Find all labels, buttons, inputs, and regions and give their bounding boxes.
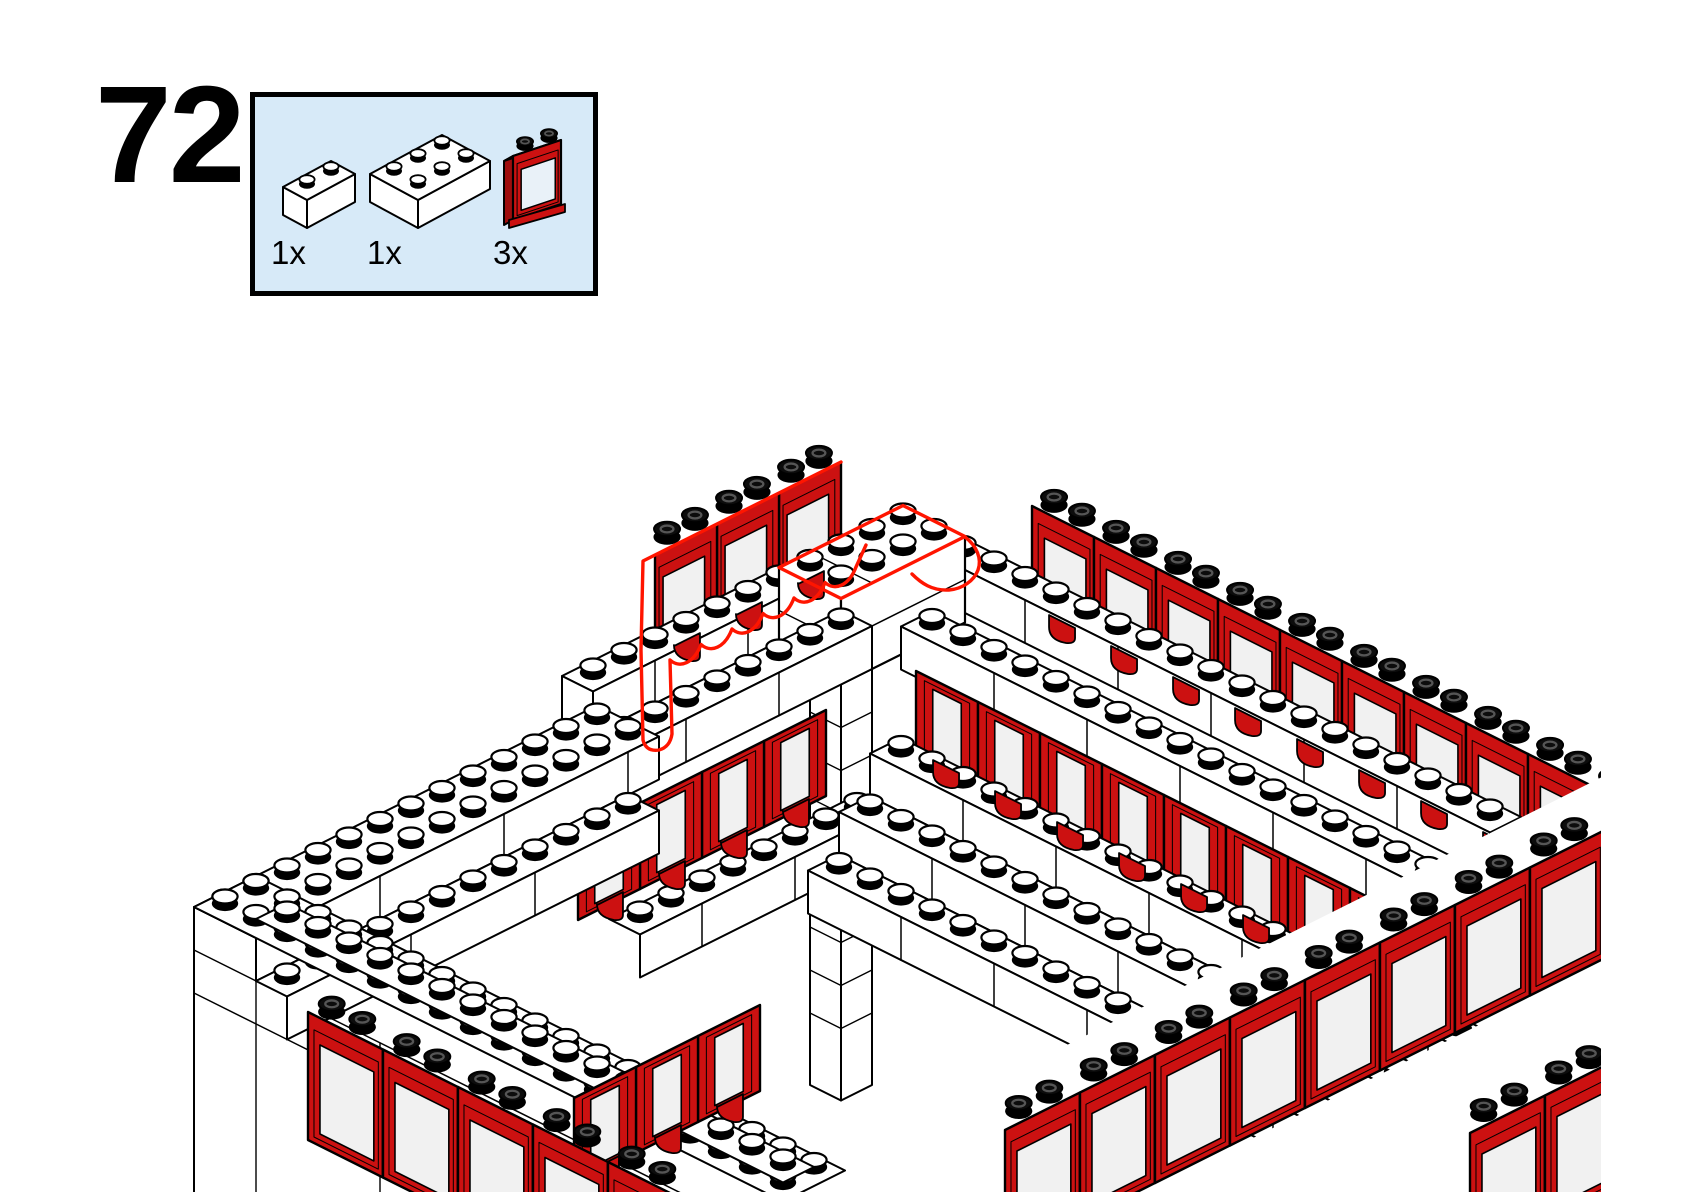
part-window-red: 3x [493, 122, 581, 269]
instruction-page: 72 1x 1x 3x [0, 0, 1684, 1192]
part-qty-brick-2x3: 1x [367, 236, 402, 269]
part-qty-brick-1x2: 1x [271, 236, 306, 269]
brick-2x3-icon [367, 130, 493, 234]
brick-1x2-icon [271, 142, 367, 234]
window-red-icon [493, 122, 581, 234]
parts-callout: 1x 1x 3x [250, 92, 598, 296]
part-qty-window: 3x [493, 236, 528, 269]
part-brick-1x2: 1x [271, 142, 367, 269]
part-brick-2x3: 1x [367, 130, 493, 269]
step-number: 72 [95, 66, 243, 204]
